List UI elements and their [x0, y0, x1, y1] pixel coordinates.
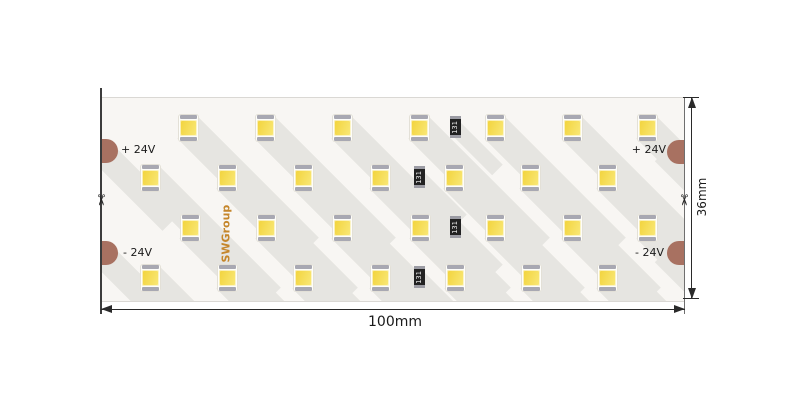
- led-terminal: [447, 265, 464, 269]
- led-phosphor: [564, 120, 581, 136]
- led-terminal: [523, 287, 540, 291]
- led-terminal: [564, 137, 581, 141]
- led-chip: [332, 114, 353, 142]
- led-chip: [140, 164, 161, 192]
- led-terminal: [487, 215, 504, 219]
- led-phosphor: [447, 270, 464, 286]
- resistor-code: 131: [452, 121, 459, 134]
- scissors-icon: ✂: [91, 190, 111, 210]
- led-phosphor: [334, 120, 351, 136]
- led-terminal: [334, 215, 351, 219]
- led-terminal: [523, 265, 540, 269]
- led-terminal: [142, 187, 159, 191]
- led-terminal: [522, 165, 539, 169]
- resistor-terminal: [414, 285, 425, 288]
- led-terminal: [219, 165, 236, 169]
- led-phosphor: [142, 170, 159, 186]
- led-terminal: [219, 287, 236, 291]
- led-terminal: [180, 115, 197, 119]
- led-phosphor: [219, 170, 236, 186]
- brand-label: SWGroup: [220, 209, 233, 263]
- led-chip: [597, 164, 618, 192]
- led-terminal: [564, 215, 581, 219]
- resistor: 131: [414, 266, 425, 288]
- led-terminal: [372, 265, 389, 269]
- led-phosphor: [487, 220, 504, 236]
- led-terminal: [257, 115, 274, 119]
- height-dimension-line: [691, 97, 692, 299]
- arrowhead-down-icon: [688, 288, 696, 299]
- led-strip-technical-drawing: 131131131131 SWGroup + 24V - 24V + 24V -…: [0, 0, 800, 418]
- led-phosphor: [599, 270, 616, 286]
- led-phosphor: [412, 220, 429, 236]
- led-terminal: [295, 287, 312, 291]
- led-terminal: [219, 187, 236, 191]
- led-phosphor: [639, 120, 656, 136]
- led-chip: [370, 264, 391, 292]
- led-terminal: [142, 265, 159, 269]
- led-chip: [485, 214, 506, 242]
- led-phosphor: [564, 220, 581, 236]
- led-terminal: [412, 215, 429, 219]
- led-terminal: [258, 215, 275, 219]
- led-phosphor: [257, 120, 274, 136]
- led-chip: [409, 114, 430, 142]
- led-chip: [521, 264, 542, 292]
- led-terminal: [372, 187, 389, 191]
- height-dimension-label: 36mm: [695, 177, 709, 217]
- led-chip: [256, 214, 277, 242]
- led-terminal: [522, 187, 539, 191]
- led-chip: [180, 214, 201, 242]
- led-chip: [520, 164, 541, 192]
- led-phosphor: [411, 120, 428, 136]
- led-chip: [217, 264, 238, 292]
- led-terminal: [599, 187, 616, 191]
- resistor-terminal: [450, 135, 461, 138]
- led-chip: [255, 114, 276, 142]
- pcb-strip: 131131131131: [101, 97, 684, 302]
- led-terminal: [639, 215, 656, 219]
- resistor: 131: [450, 116, 461, 138]
- terminal-label-negative-right: - 24V: [626, 246, 664, 259]
- led-terminal: [412, 237, 429, 241]
- led-phosphor: [142, 270, 159, 286]
- led-phosphor: [334, 220, 351, 236]
- led-phosphor: [599, 170, 616, 186]
- led-chip: [562, 214, 583, 242]
- resistor: 131: [450, 216, 461, 238]
- led-terminal: [599, 265, 616, 269]
- led-terminal: [446, 165, 463, 169]
- led-terminal: [599, 165, 616, 169]
- led-chip: [140, 264, 161, 292]
- led-phosphor: [258, 220, 275, 236]
- led-chip: [293, 264, 314, 292]
- resistor-terminal: [414, 185, 425, 188]
- led-chip: [410, 214, 431, 242]
- resistor: 131: [414, 166, 425, 188]
- led-chip: [637, 214, 658, 242]
- width-dimension-label: 100mm: [365, 314, 425, 330]
- resistor-code: 131: [416, 271, 423, 284]
- led-terminal: [487, 115, 504, 119]
- led-terminal: [182, 237, 199, 241]
- led-chip: [445, 264, 466, 292]
- led-terminal: [258, 237, 275, 241]
- led-terminal: [295, 265, 312, 269]
- led-terminal: [334, 137, 351, 141]
- led-phosphor: [523, 270, 540, 286]
- led-phosphor: [639, 220, 656, 236]
- led-chip: [562, 114, 583, 142]
- led-phosphor: [182, 220, 199, 236]
- terminal-label-positive-right: + 24V: [628, 143, 666, 156]
- led-terminal: [564, 115, 581, 119]
- led-terminal: [639, 115, 656, 119]
- led-phosphor: [487, 120, 504, 136]
- led-terminal: [257, 137, 274, 141]
- led-phosphor: [522, 170, 539, 186]
- arrowhead-left-icon: [101, 305, 112, 313]
- led-terminal: [411, 137, 428, 141]
- led-phosphor: [372, 270, 389, 286]
- led-terminal: [334, 237, 351, 241]
- resistor-body: 131: [414, 269, 425, 285]
- resistor-body: 131: [450, 119, 461, 135]
- led-chip: [332, 214, 353, 242]
- led-chip: [485, 114, 506, 142]
- led-chip: [444, 164, 465, 192]
- led-chip: [178, 114, 199, 142]
- led-terminal: [639, 237, 656, 241]
- led-terminal: [487, 237, 504, 241]
- led-chip: [637, 114, 658, 142]
- solder-pad: [667, 140, 684, 164]
- resistor-code: 131: [416, 171, 423, 184]
- led-terminal: [180, 137, 197, 141]
- resistor-terminal: [450, 235, 461, 238]
- led-terminal: [599, 287, 616, 291]
- terminal-label-positive-left: + 24V: [121, 143, 155, 156]
- led-chip: [217, 164, 238, 192]
- led-terminal: [334, 115, 351, 119]
- led-chip: [597, 264, 618, 292]
- solder-pad: [667, 241, 684, 265]
- resistor-code: 131: [452, 221, 459, 234]
- led-terminal: [182, 215, 199, 219]
- terminal-label-negative-left: - 24V: [123, 246, 152, 259]
- led-terminal: [411, 115, 428, 119]
- led-terminal: [446, 187, 463, 191]
- led-terminal: [564, 237, 581, 241]
- led-terminal: [142, 165, 159, 169]
- arrowhead-up-icon: [688, 97, 696, 108]
- led-terminal: [372, 287, 389, 291]
- led-chip: [293, 164, 314, 192]
- resistor-body: 131: [450, 219, 461, 235]
- led-terminal: [219, 265, 236, 269]
- led-terminal: [639, 137, 656, 141]
- led-phosphor: [446, 170, 463, 186]
- led-phosphor: [372, 170, 389, 186]
- led-terminal: [372, 165, 389, 169]
- led-chip: [370, 164, 391, 192]
- resistor-body: 131: [414, 169, 425, 185]
- width-dimension-line: [101, 309, 685, 310]
- led-phosphor: [180, 120, 197, 136]
- led-terminal: [487, 137, 504, 141]
- led-phosphor: [295, 170, 312, 186]
- led-terminal: [295, 165, 312, 169]
- led-phosphor: [295, 270, 312, 286]
- led-terminal: [447, 287, 464, 291]
- led-phosphor: [219, 270, 236, 286]
- led-terminal: [142, 287, 159, 291]
- arrowhead-right-icon: [674, 305, 685, 313]
- led-terminal: [295, 187, 312, 191]
